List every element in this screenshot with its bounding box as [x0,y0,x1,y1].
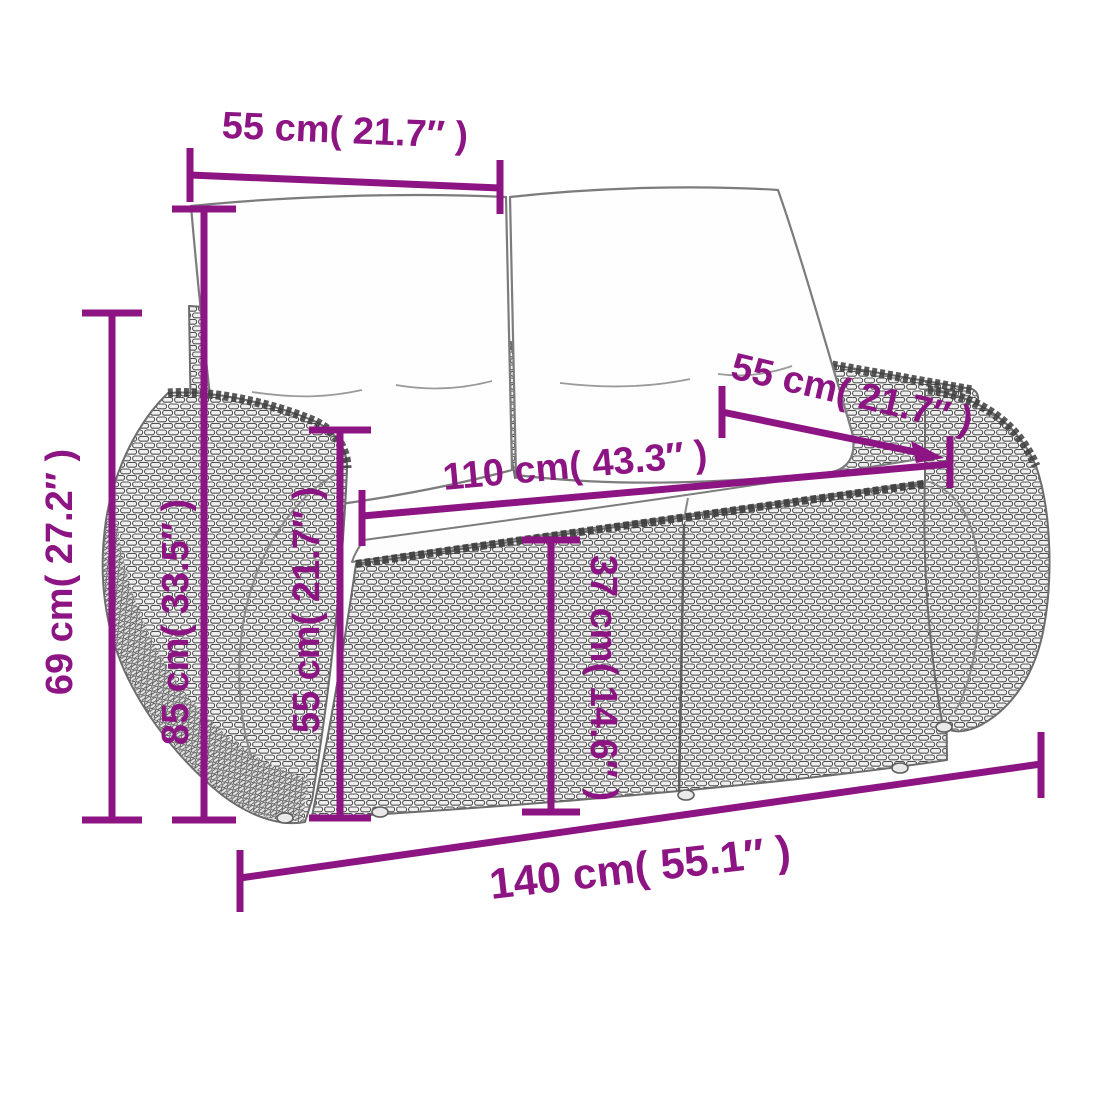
dim-label-seat-height: 37 cm( 14.6″ ) [582,555,624,801]
dim-label-overall-height: 69 cm( 27.2″ ) [39,449,81,695]
sofa-foot [678,790,694,800]
dimension-diagram: 55 cm( 21.7″ ) 69 cm( 27.2″ ) 85 cm( 33.… [0,0,1100,1100]
sofa-dimension-drawing: 55 cm( 21.7″ ) 69 cm( 27.2″ ) 85 cm( 33.… [0,0,1100,1100]
sofa-foot [892,763,908,773]
dim-label-back-height: 85 cm( 33.5″ ) [155,499,197,745]
sofa-foot [936,722,952,732]
dim-label-armrest-height: 55 cm( 21.7″ ) [286,487,328,733]
sofa-foot [372,807,388,817]
sofa-foot [277,813,293,823]
